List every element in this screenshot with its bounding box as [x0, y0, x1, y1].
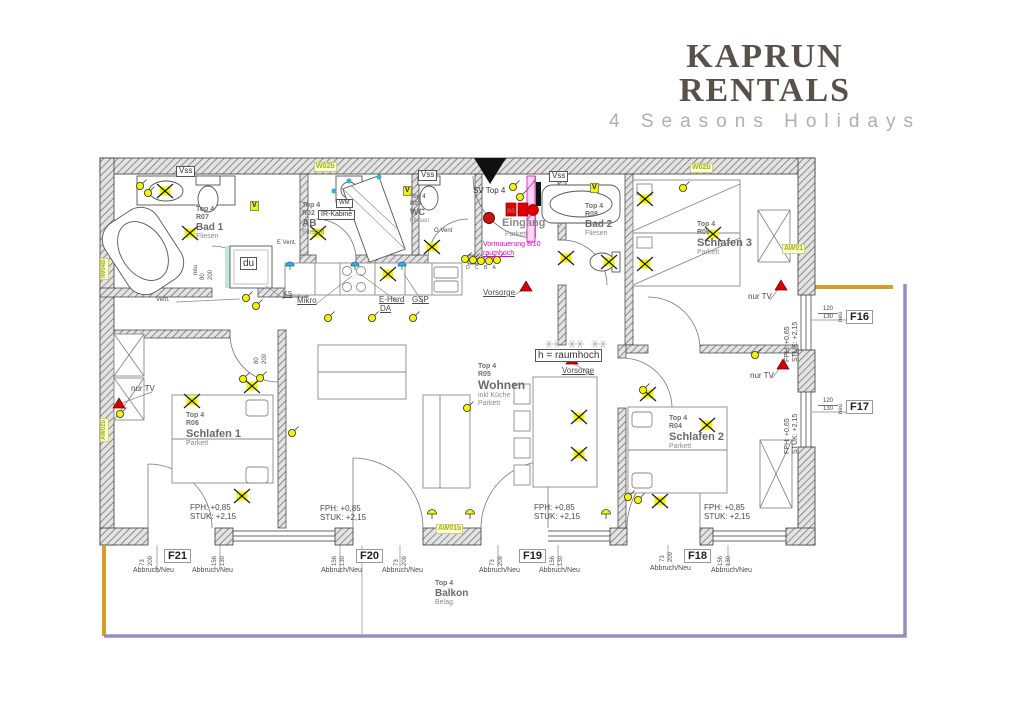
- fph-stuk-note: FPH: +0,85STUK: +2,15: [320, 505, 366, 523]
- dim-156-130: 156130: [212, 556, 227, 566]
- window-label-f20: F20: [356, 549, 383, 563]
- wm-label: WM: [336, 199, 353, 208]
- dim-156-130: 156130: [718, 556, 733, 566]
- fph-stuk-note-vertical: FPH: +0,65 STUK: +2,15: [784, 322, 800, 362]
- raumhoch-note: h = raumhoch: [535, 349, 602, 362]
- door-leaf-icon: [536, 182, 541, 206]
- sink-icon: [434, 267, 458, 278]
- aw01b-tag: AW01b: [436, 524, 463, 534]
- neu-label: neu: [193, 265, 200, 275]
- gsp-label: GSP: [412, 296, 429, 305]
- sideboard-icon: [318, 345, 406, 399]
- window-label-f19: F19: [519, 549, 546, 563]
- ceiling-fixture-icon: [576, 341, 584, 348]
- aw01-tag: AW01: [782, 244, 805, 254]
- aw02b-tag: AW02b: [100, 418, 109, 442]
- dining-table-icon: [533, 377, 597, 487]
- ceiling-fixture-icon: [599, 341, 607, 348]
- distribution-board-icon: [518, 203, 528, 216]
- abbruch-neu-label: Abbruch/Neu: [382, 567, 423, 575]
- fph-stuk-note: FPH: +0,85STUK: +2,15: [190, 504, 236, 522]
- dim-73-209: 73209: [490, 556, 505, 566]
- socket-icon: [332, 189, 337, 194]
- vormauerung-note2: raumhoch: [483, 250, 514, 258]
- room-label-schlafen1: Top 4 R06 Schlafen 1 Parkett: [186, 412, 241, 448]
- vss-tag: Vss: [549, 171, 568, 182]
- e-vent-label: E Vent.: [277, 240, 296, 247]
- abbruch-neu-label: Abbruch/Neu: [133, 567, 174, 575]
- toilet-tank-icon: [196, 176, 220, 185]
- vent-label: Vent.: [156, 297, 170, 304]
- ceiling-light-icon: [652, 494, 668, 508]
- nur-tv-label: nur TV: [131, 385, 155, 394]
- abbruch-neu-label: Abbruch/Neu: [711, 567, 752, 575]
- dim-120-130: 120 130: [818, 398, 838, 412]
- tv-outlet-icon: [520, 281, 532, 291]
- o-vent-label: O Vent: [434, 228, 452, 235]
- window-label-f18: F18: [684, 549, 711, 563]
- smoke-detector-icon: [484, 213, 495, 224]
- ceiling-light-icon: [558, 251, 574, 265]
- abbruch-neu-label: Abbruch/Neu: [321, 567, 362, 575]
- room-label-balkon: Top 4 Balkon Belag: [435, 580, 468, 607]
- dim-156-130: 156130: [550, 556, 565, 566]
- room-label-schlafen2: Top 4 R04 Schlafen 2 Parkett: [669, 415, 724, 451]
- room-label-schlafen3: Top 4 R09 Schlafen 3 Parkett: [697, 221, 752, 257]
- room-nr-eingang: R01: [507, 209, 518, 216]
- chair-icon: [514, 438, 530, 458]
- vss-tag: Vss: [418, 170, 437, 181]
- circuit-letters: D C B A: [466, 266, 498, 272]
- floor-plan-svg: [0, 0, 1024, 724]
- ir-kabine-label: IR-Kabine: [318, 210, 355, 220]
- ks-label: KS: [283, 291, 292, 299]
- nur-tv-label: nur TV: [750, 372, 774, 381]
- window-f19: [548, 531, 610, 541]
- window-f17: [801, 392, 811, 447]
- abbruch-neu-label: Abbruch/Neu: [192, 567, 233, 575]
- window-label-f21: F21: [164, 549, 191, 563]
- wall-lamp-icon: [602, 510, 611, 520]
- mikro-label: Mikro: [297, 297, 317, 306]
- v-tag: V: [590, 183, 599, 193]
- v-tag: V: [250, 201, 259, 211]
- dim-156-130: 156130: [332, 556, 347, 566]
- meter-icon: [528, 205, 539, 216]
- abbruch-neu-label: Abbruch/Neu: [650, 565, 691, 573]
- sv-top4-label: SV Top 4: [473, 187, 505, 196]
- da-label: DA: [380, 305, 391, 314]
- lamp-icon: [509, 181, 519, 191]
- lamp-icon: [239, 373, 249, 383]
- ceiling-fixture-icon: [568, 341, 576, 348]
- room-label-eingang: Eingang: [502, 217, 545, 229]
- floor-plan-page: KAPRUN RENTALS 4 Seasons Holidays: [0, 0, 1024, 724]
- wall-lamp-icon: [466, 510, 475, 520]
- wall-lamp-icon: [428, 510, 437, 520]
- window-f18: [713, 531, 786, 541]
- lamp-icon: [242, 292, 252, 302]
- vss-tag: Vss: [176, 166, 195, 177]
- lamp-icon: [516, 191, 526, 201]
- neu-label: neu: [838, 404, 845, 414]
- room-label-wc: Top 4 R03 WC Fliesen: [410, 194, 429, 224]
- room-floor-eingang: Parkett: [505, 231, 527, 239]
- lamp-icon: [368, 312, 378, 322]
- lamp-icon: [634, 494, 644, 504]
- window-f21: [233, 531, 335, 541]
- room-label-bad1: Top 4 R07 Bad 1 Fliesen: [196, 206, 223, 241]
- ceiling-fixture-icon: [545, 341, 553, 348]
- iw04b-tag: IW04B: [100, 258, 109, 280]
- abbruch-neu-label: Abbruch/Neu: [479, 567, 520, 575]
- fph-stuk-note-vertical: FPH: +0,65 STUK: +2,15: [784, 414, 800, 454]
- socket-icon: [347, 179, 352, 184]
- w02b-tag: W02b: [690, 163, 713, 173]
- dim-80-200: 80200: [254, 354, 269, 364]
- shower-du-label: du: [240, 257, 257, 270]
- chair-icon: [514, 465, 530, 485]
- abbruch-neu-label: Abbruch/Neu: [539, 567, 580, 575]
- dim-120-130: 120 130: [818, 306, 838, 320]
- neu-label: neu: [838, 312, 845, 322]
- dim-73-209: 73209: [140, 556, 155, 566]
- ceiling-fixture-icon: [591, 341, 599, 348]
- lamp-icon: [324, 312, 334, 322]
- vorsorge-label: Vorsorge: [562, 367, 594, 376]
- fph-stuk-note: FPH: +0,85STUK: +2,15: [534, 504, 580, 522]
- window-label-f16: F16: [846, 310, 873, 324]
- vormauerung-note: Vormauerung 8/10: [483, 241, 541, 249]
- vorsorge-label: Vorsorge: [483, 289, 515, 298]
- room-label-bad2: Top 4 R08 Bad 2 Fliesen: [585, 203, 612, 238]
- room-label-wohnen: Top 4 R05 Wohnen inkl Küche Parkett: [478, 363, 525, 408]
- dim-73-209: 73209: [660, 552, 675, 562]
- lamp-icon: [252, 300, 262, 310]
- nur-tv-label: nur TV: [748, 293, 772, 302]
- sofa-icon: [423, 395, 470, 488]
- socket-icon: [377, 175, 382, 180]
- lamp-icon: [409, 312, 419, 322]
- w02b-tag: W02b: [314, 162, 337, 172]
- wardrobe-icon: [758, 210, 790, 262]
- window-label-f17: F17: [846, 400, 873, 414]
- tv-outlet-icon: [775, 280, 787, 290]
- fph-stuk-note: FPH: +0,85STUK: +2,15: [704, 504, 750, 522]
- dim-73-209: 73209: [394, 556, 409, 566]
- wardrobe-icon: [114, 334, 144, 376]
- lamp-icon: [288, 427, 298, 437]
- dim-80-200: 80200: [200, 270, 215, 280]
- kitchen-counter-icon: [285, 263, 462, 295]
- ceiling-light-icon: [234, 489, 250, 503]
- window-f16: [801, 295, 811, 350]
- chair-icon: [514, 411, 530, 431]
